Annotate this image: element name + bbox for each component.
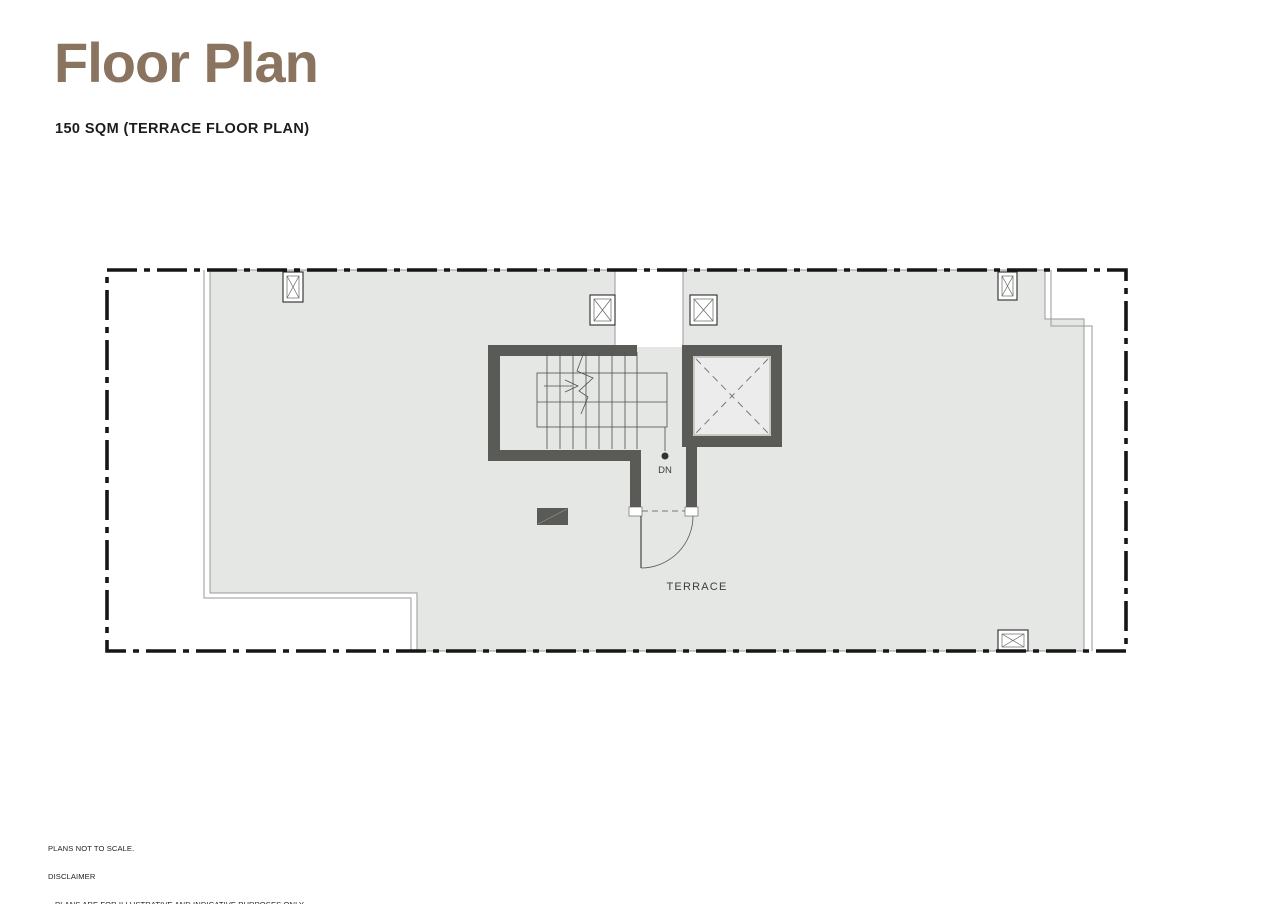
door-jamb-left [629,507,642,516]
vestibule-wall-right [686,447,697,507]
stair-void [615,270,683,347]
terrace-label: TERRACE [667,581,728,593]
vent-marker-top-left [283,272,303,302]
stair-wall-left [488,345,500,461]
stair-wall-top [488,345,637,356]
door-jamb-right [685,507,698,516]
vestibule-wall-left [630,450,641,507]
floor-plan-page: Floor Plan 150 SQM (TERRACE FLOOR PLAN) [0,0,1280,904]
void-floor [615,270,683,347]
wall-stub [537,508,568,525]
disclaimer-line: PLANS NOT TO SCALE. [48,844,733,853]
vent-marker-top-right [998,272,1017,300]
terrace-floor-plan-drawing: DN [0,0,1280,904]
down-label: DN [658,465,672,476]
disclaimer-block: PLANS NOT TO SCALE. DISCLAIMER - PLANS A… [48,826,733,904]
walk-line-dot [662,453,669,460]
stair-wall-bottom [488,450,641,461]
skylight-shaft [694,357,770,435]
disclaimer-line: DISCLAIMER [48,872,733,881]
vent-marker-bottom-right [998,630,1028,651]
shaft-wall-bottom [682,436,782,447]
vent-marker-void-left [590,295,615,325]
vent-marker-void-right [690,295,717,325]
shaft-wall-left [682,345,693,447]
shaft-wall-right [771,345,782,447]
disclaimer-line: - PLANS ARE FOR ILLUSTRATIVE AND INDICAT… [48,900,733,904]
shaft-wall-top [682,345,782,356]
